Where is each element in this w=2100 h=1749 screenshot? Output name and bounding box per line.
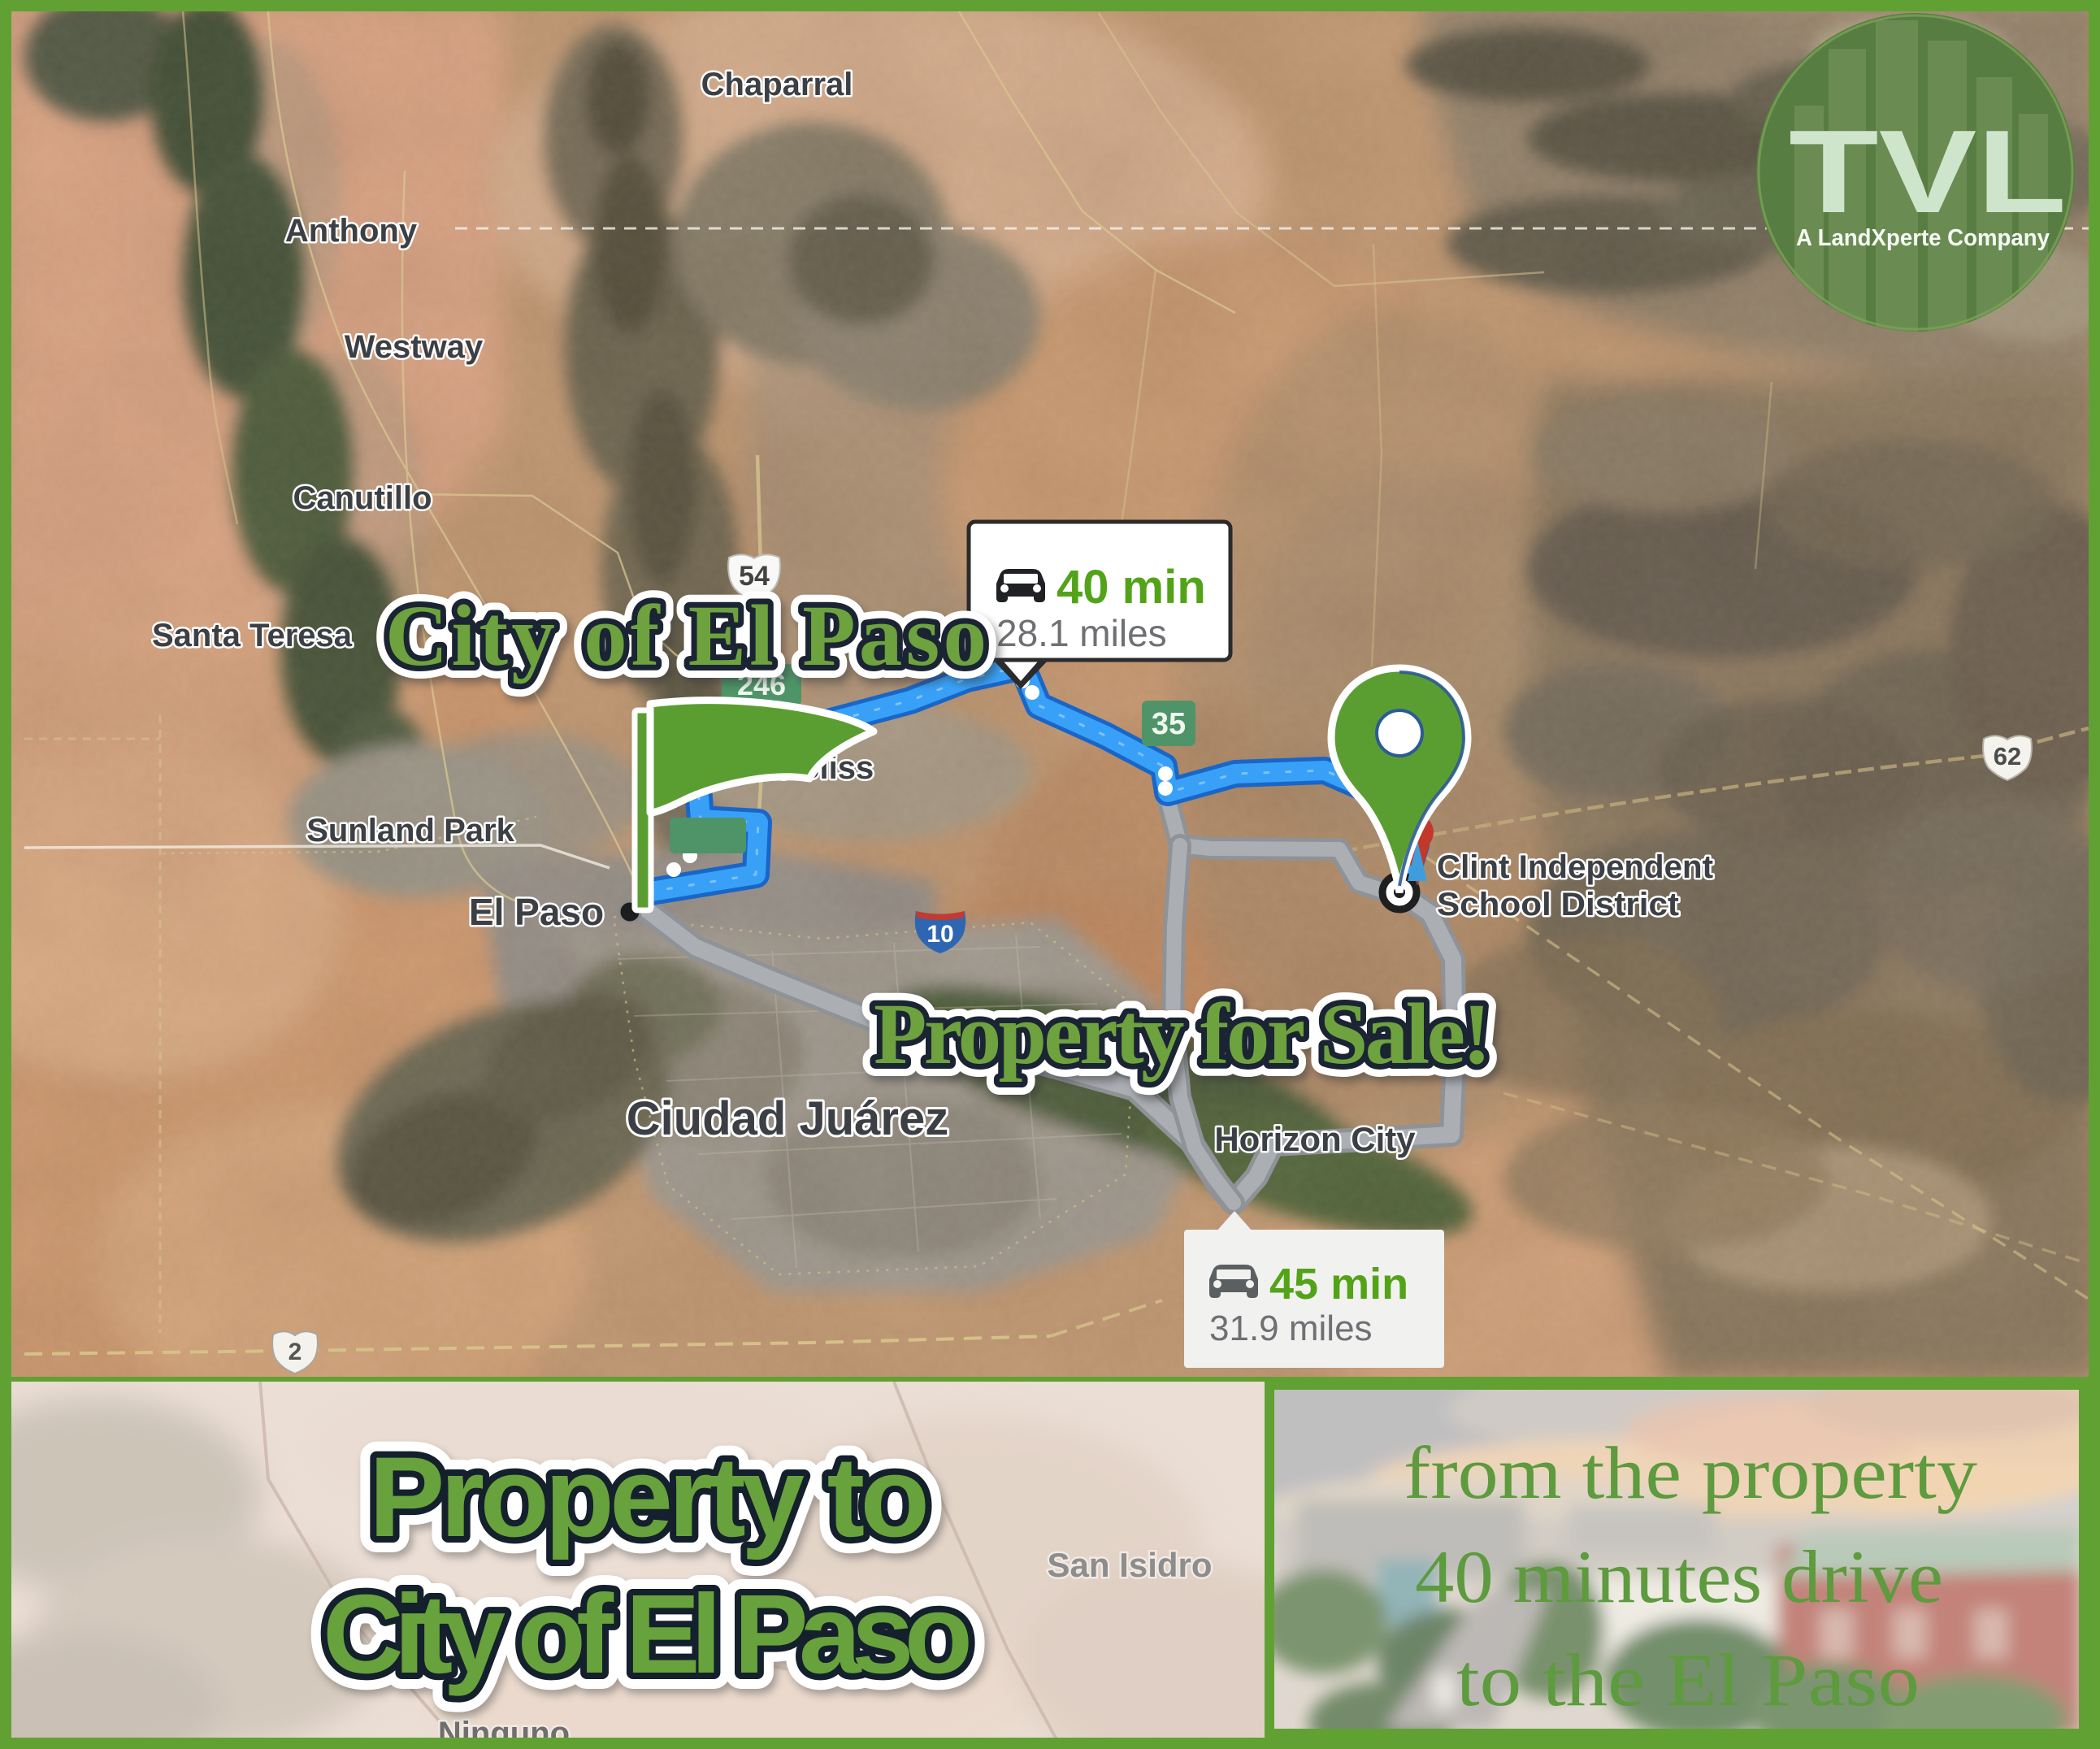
svg-text:Property for Sale!: Property for Sale!	[874, 987, 1491, 1083]
svg-text:City of El Paso: City of El Paso	[323, 1572, 973, 1697]
svg-text:2: 2	[289, 1339, 302, 1365]
svg-text:Canutillo: Canutillo	[293, 480, 432, 516]
svg-text:School District: School District	[1437, 887, 1679, 922]
svg-text:54: 54	[739, 561, 770, 592]
svg-text:Property to: Property to	[369, 1433, 930, 1560]
svg-text:40 minutes drive: 40 minutes drive	[1415, 1535, 1943, 1618]
svg-text:10: 10	[926, 921, 953, 948]
svg-text:Chaparral: Chaparral	[701, 67, 853, 102]
svg-text:San Isidro: San Isidro	[1047, 1546, 1212, 1584]
svg-text:Horizon City: Horizon City	[1214, 1120, 1416, 1158]
svg-text:El Paso: El Paso	[469, 891, 604, 933]
svg-text:31.9 miles: 31.9 miles	[1209, 1308, 1373, 1348]
svg-text:Anthony: Anthony	[285, 213, 418, 249]
svg-text:Sunland Park: Sunland Park	[306, 813, 514, 848]
svg-text:45 min: 45 min	[1269, 1260, 1408, 1308]
svg-text:62: 62	[1994, 742, 2021, 770]
svg-text:from the property: from the property	[1404, 1431, 1977, 1514]
svg-text:A LandXperte Company: A LandXperte Company	[1796, 225, 2050, 251]
svg-text:TVL: TVL	[1789, 106, 2067, 237]
svg-text:35: 35	[1152, 707, 1186, 741]
svg-text:40 min: 40 min	[1057, 561, 1206, 614]
svg-text:to the El Paso: to the El Paso	[1456, 1638, 1920, 1721]
svg-text:Clint Independent: Clint Independent	[1437, 849, 1713, 885]
svg-text:28.1 miles: 28.1 miles	[996, 612, 1167, 654]
svg-text:Ciudad Juárez: Ciudad Juárez	[627, 1092, 948, 1145]
svg-text:Westway: Westway	[345, 329, 484, 365]
svg-text:Santa Teresa: Santa Teresa	[152, 618, 353, 653]
